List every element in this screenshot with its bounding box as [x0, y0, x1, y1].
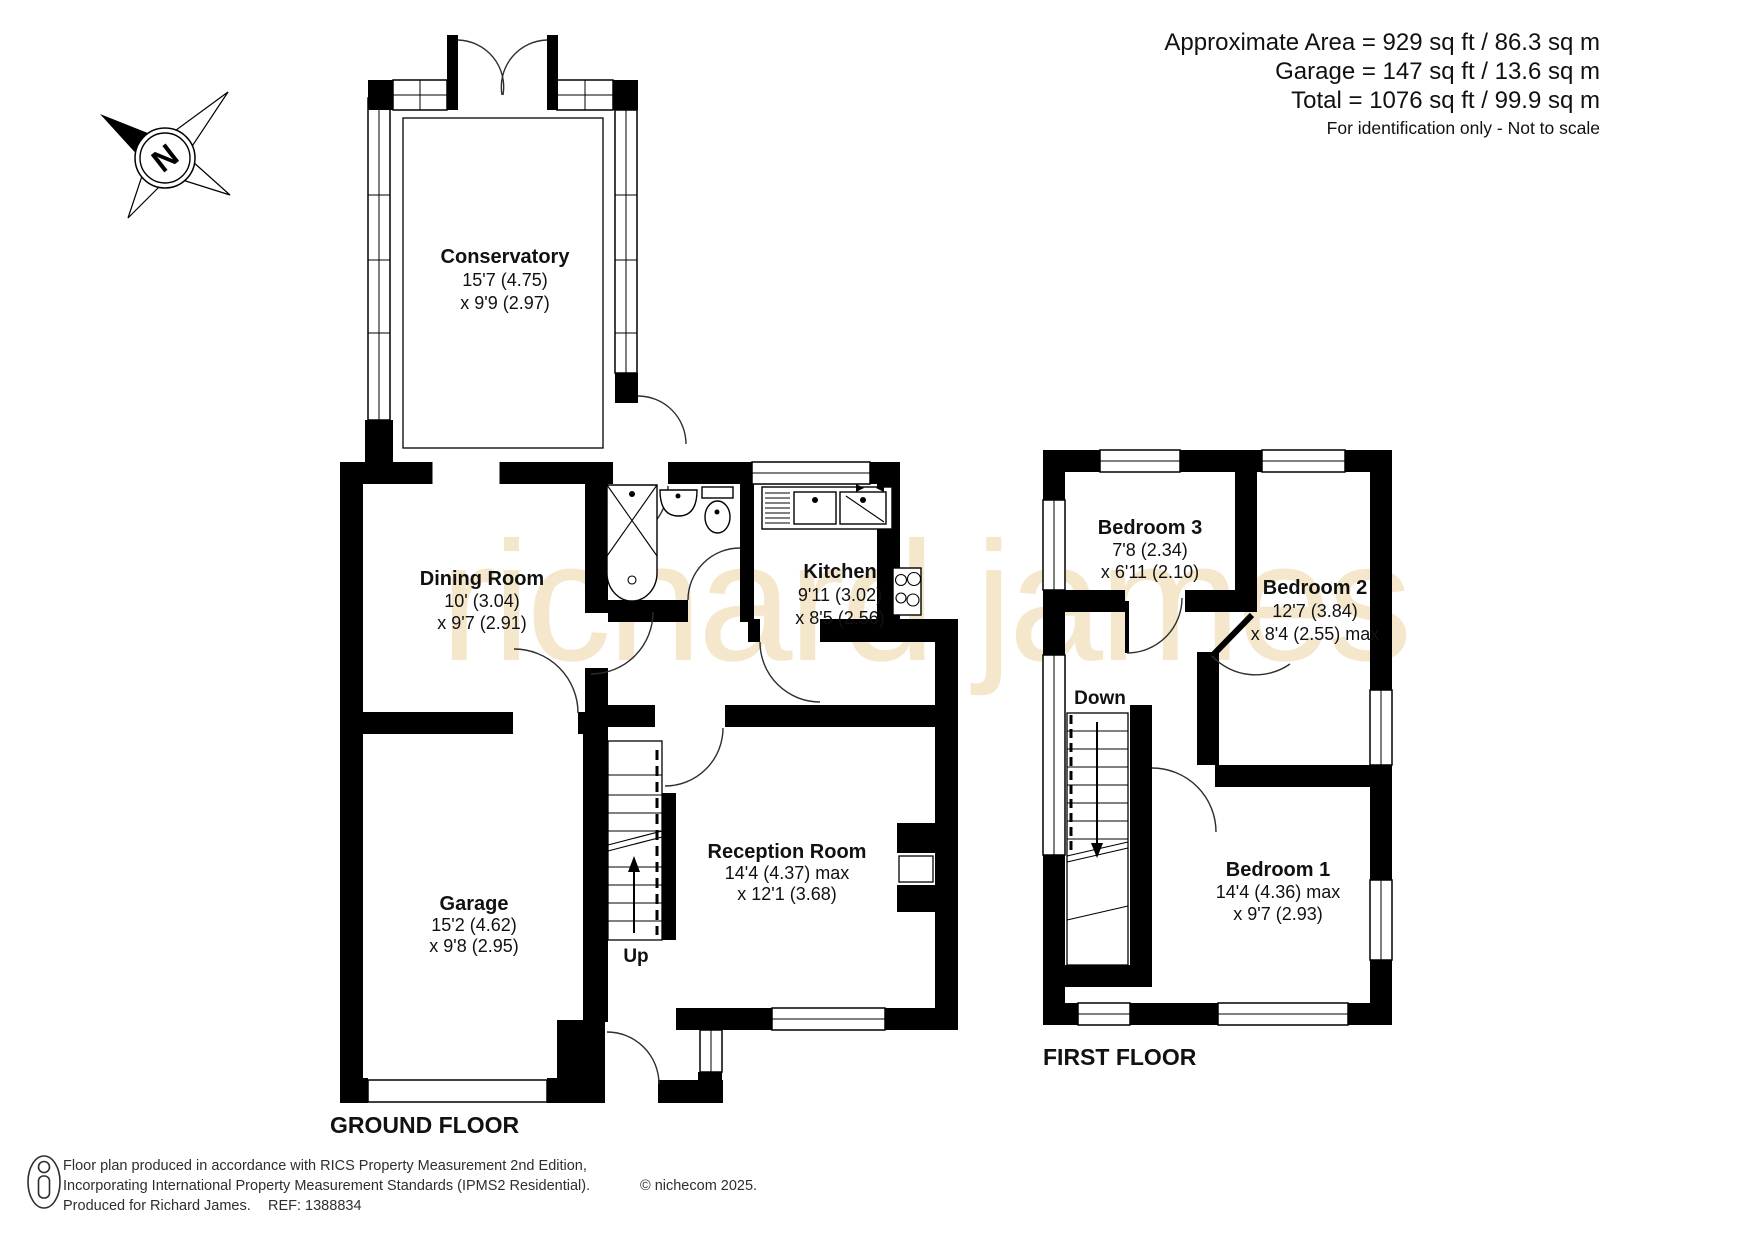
footer-line1: Floor plan produced in accordance with R… — [63, 1158, 587, 1174]
room-dim: 14'4 (4.36) max — [1216, 882, 1341, 902]
header-note: For identification only - Not to scale — [1327, 118, 1600, 138]
footer-copyright: © nichecom 2025. — [640, 1178, 757, 1194]
room-dim: 9'11 (3.02) — [798, 585, 882, 605]
room-name: Bedroom 1 — [1226, 859, 1330, 881]
stairs-up-label: Up — [623, 946, 648, 967]
room-dim: 15'2 (4.62) — [431, 915, 517, 935]
room-dim: x 9'7 (2.91) — [437, 613, 526, 633]
room-name: Bedroom 3 — [1098, 517, 1202, 539]
garage-door — [358, 1080, 557, 1102]
footer-produced: Produced for Richard James. — [63, 1198, 251, 1214]
room-name: Bedroom 2 — [1263, 577, 1367, 599]
ground-floor-title: GROUND FLOOR — [330, 1112, 519, 1138]
header-area-line: Approximate Area = 929 sq ft / 86.3 sq m — [1164, 29, 1600, 56]
room-dim: x 9'9 (2.97) — [460, 293, 549, 313]
room-label-reception-room: Reception Room 14'4 (4.37) max x 12'1 (3… — [708, 841, 867, 904]
header-total-line: Total = 1076 sq ft / 99.9 sq m — [1291, 87, 1600, 114]
floorplan-page: richard james Approximate Area = 929 sq … — [0, 0, 1755, 1241]
footer: Floor plan produced in accordance with R… — [28, 1156, 757, 1214]
bath-icon — [607, 485, 657, 601]
compass-icon: N — [100, 92, 230, 218]
room-dim: x 6'11 (2.10) — [1101, 562, 1199, 582]
room-label-bedroom-1: Bedroom 1 14'4 (4.36) max x 9'7 (2.93) — [1216, 859, 1341, 924]
person-icon — [28, 1156, 60, 1208]
room-dim: x 9'8 (2.95) — [429, 936, 518, 956]
room-label-conservatory: Conservatory 15'7 (4.75) x 9'9 (2.97) — [441, 246, 571, 313]
kitchen-sink-icon — [762, 484, 892, 529]
room-dim: 12'7 (3.84) — [1272, 601, 1358, 621]
conservatory-side-door — [638, 396, 686, 444]
toilet-icon — [702, 487, 733, 533]
room-name: Dining Room — [420, 568, 544, 590]
stairs-down — [1067, 713, 1128, 965]
conservatory-double-doors — [458, 40, 547, 95]
room-dim: 10' (3.04) — [444, 591, 519, 611]
room-dim: 14'4 (4.37) max — [725, 863, 850, 883]
stairs-down-label: Down — [1074, 688, 1126, 709]
footer-ref: REF: 1388834 — [268, 1198, 362, 1214]
room-label-kitchen: Kitchen 9'11 (3.02) x 8'5 (2.56) — [795, 561, 884, 628]
room-dim: 7'8 (2.34) — [1112, 540, 1187, 560]
room-name: Kitchen — [803, 561, 876, 583]
room-dim: x 8'5 (2.56) — [795, 608, 884, 628]
hob-icon — [893, 568, 921, 615]
first-floor-title: FIRST FLOOR — [1043, 1044, 1197, 1070]
room-dim: x 9'7 (2.93) — [1233, 904, 1322, 924]
stairs-up — [608, 741, 662, 940]
room-name: Conservatory — [441, 246, 571, 268]
header: Approximate Area = 929 sq ft / 86.3 sq m… — [1164, 29, 1600, 138]
header-garage-line: Garage = 147 sq ft / 13.6 sq m — [1275, 58, 1600, 85]
footer-line2: Incorporating International Property Mea… — [63, 1178, 590, 1194]
room-dim: x 12'1 (3.68) — [737, 884, 837, 904]
room-label-garage: Garage 15'2 (4.62) x 9'8 (2.95) — [429, 893, 518, 956]
room-dim: x 8'4 (2.55) max — [1251, 624, 1380, 644]
room-name: Garage — [440, 893, 509, 915]
room-name: Reception Room — [708, 841, 867, 863]
room-dim: 15'7 (4.75) — [462, 270, 548, 290]
room-label-bedroom-3: Bedroom 3 7'8 (2.34) x 6'11 (2.10) — [1098, 517, 1202, 582]
